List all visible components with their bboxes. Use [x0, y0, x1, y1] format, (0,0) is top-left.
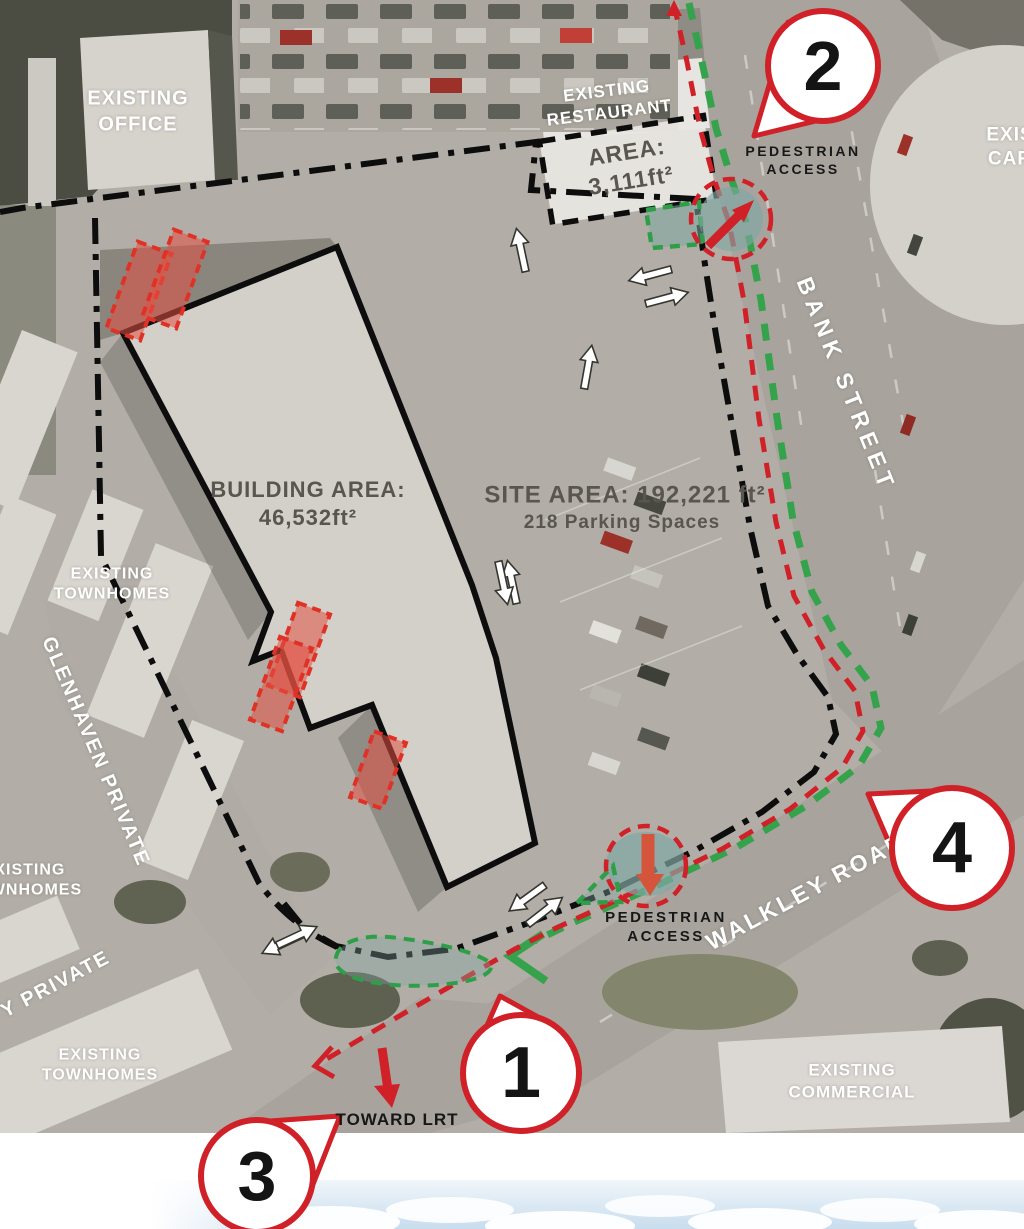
- callout-4-number: 4: [932, 807, 972, 889]
- callout-2-number: 2: [804, 26, 843, 106]
- callout-3: 3: [198, 1117, 316, 1229]
- callout-2: 2: [765, 8, 881, 124]
- callout-1-number: 1: [501, 1032, 541, 1114]
- callout-4: 4: [889, 785, 1015, 911]
- callout-3-number: 3: [238, 1136, 277, 1216]
- callout-1: 1: [460, 1012, 582, 1134]
- site-plan-map: EXISTING OFFICE EXISTING RESTAURANT AREA…: [0, 0, 1024, 1229]
